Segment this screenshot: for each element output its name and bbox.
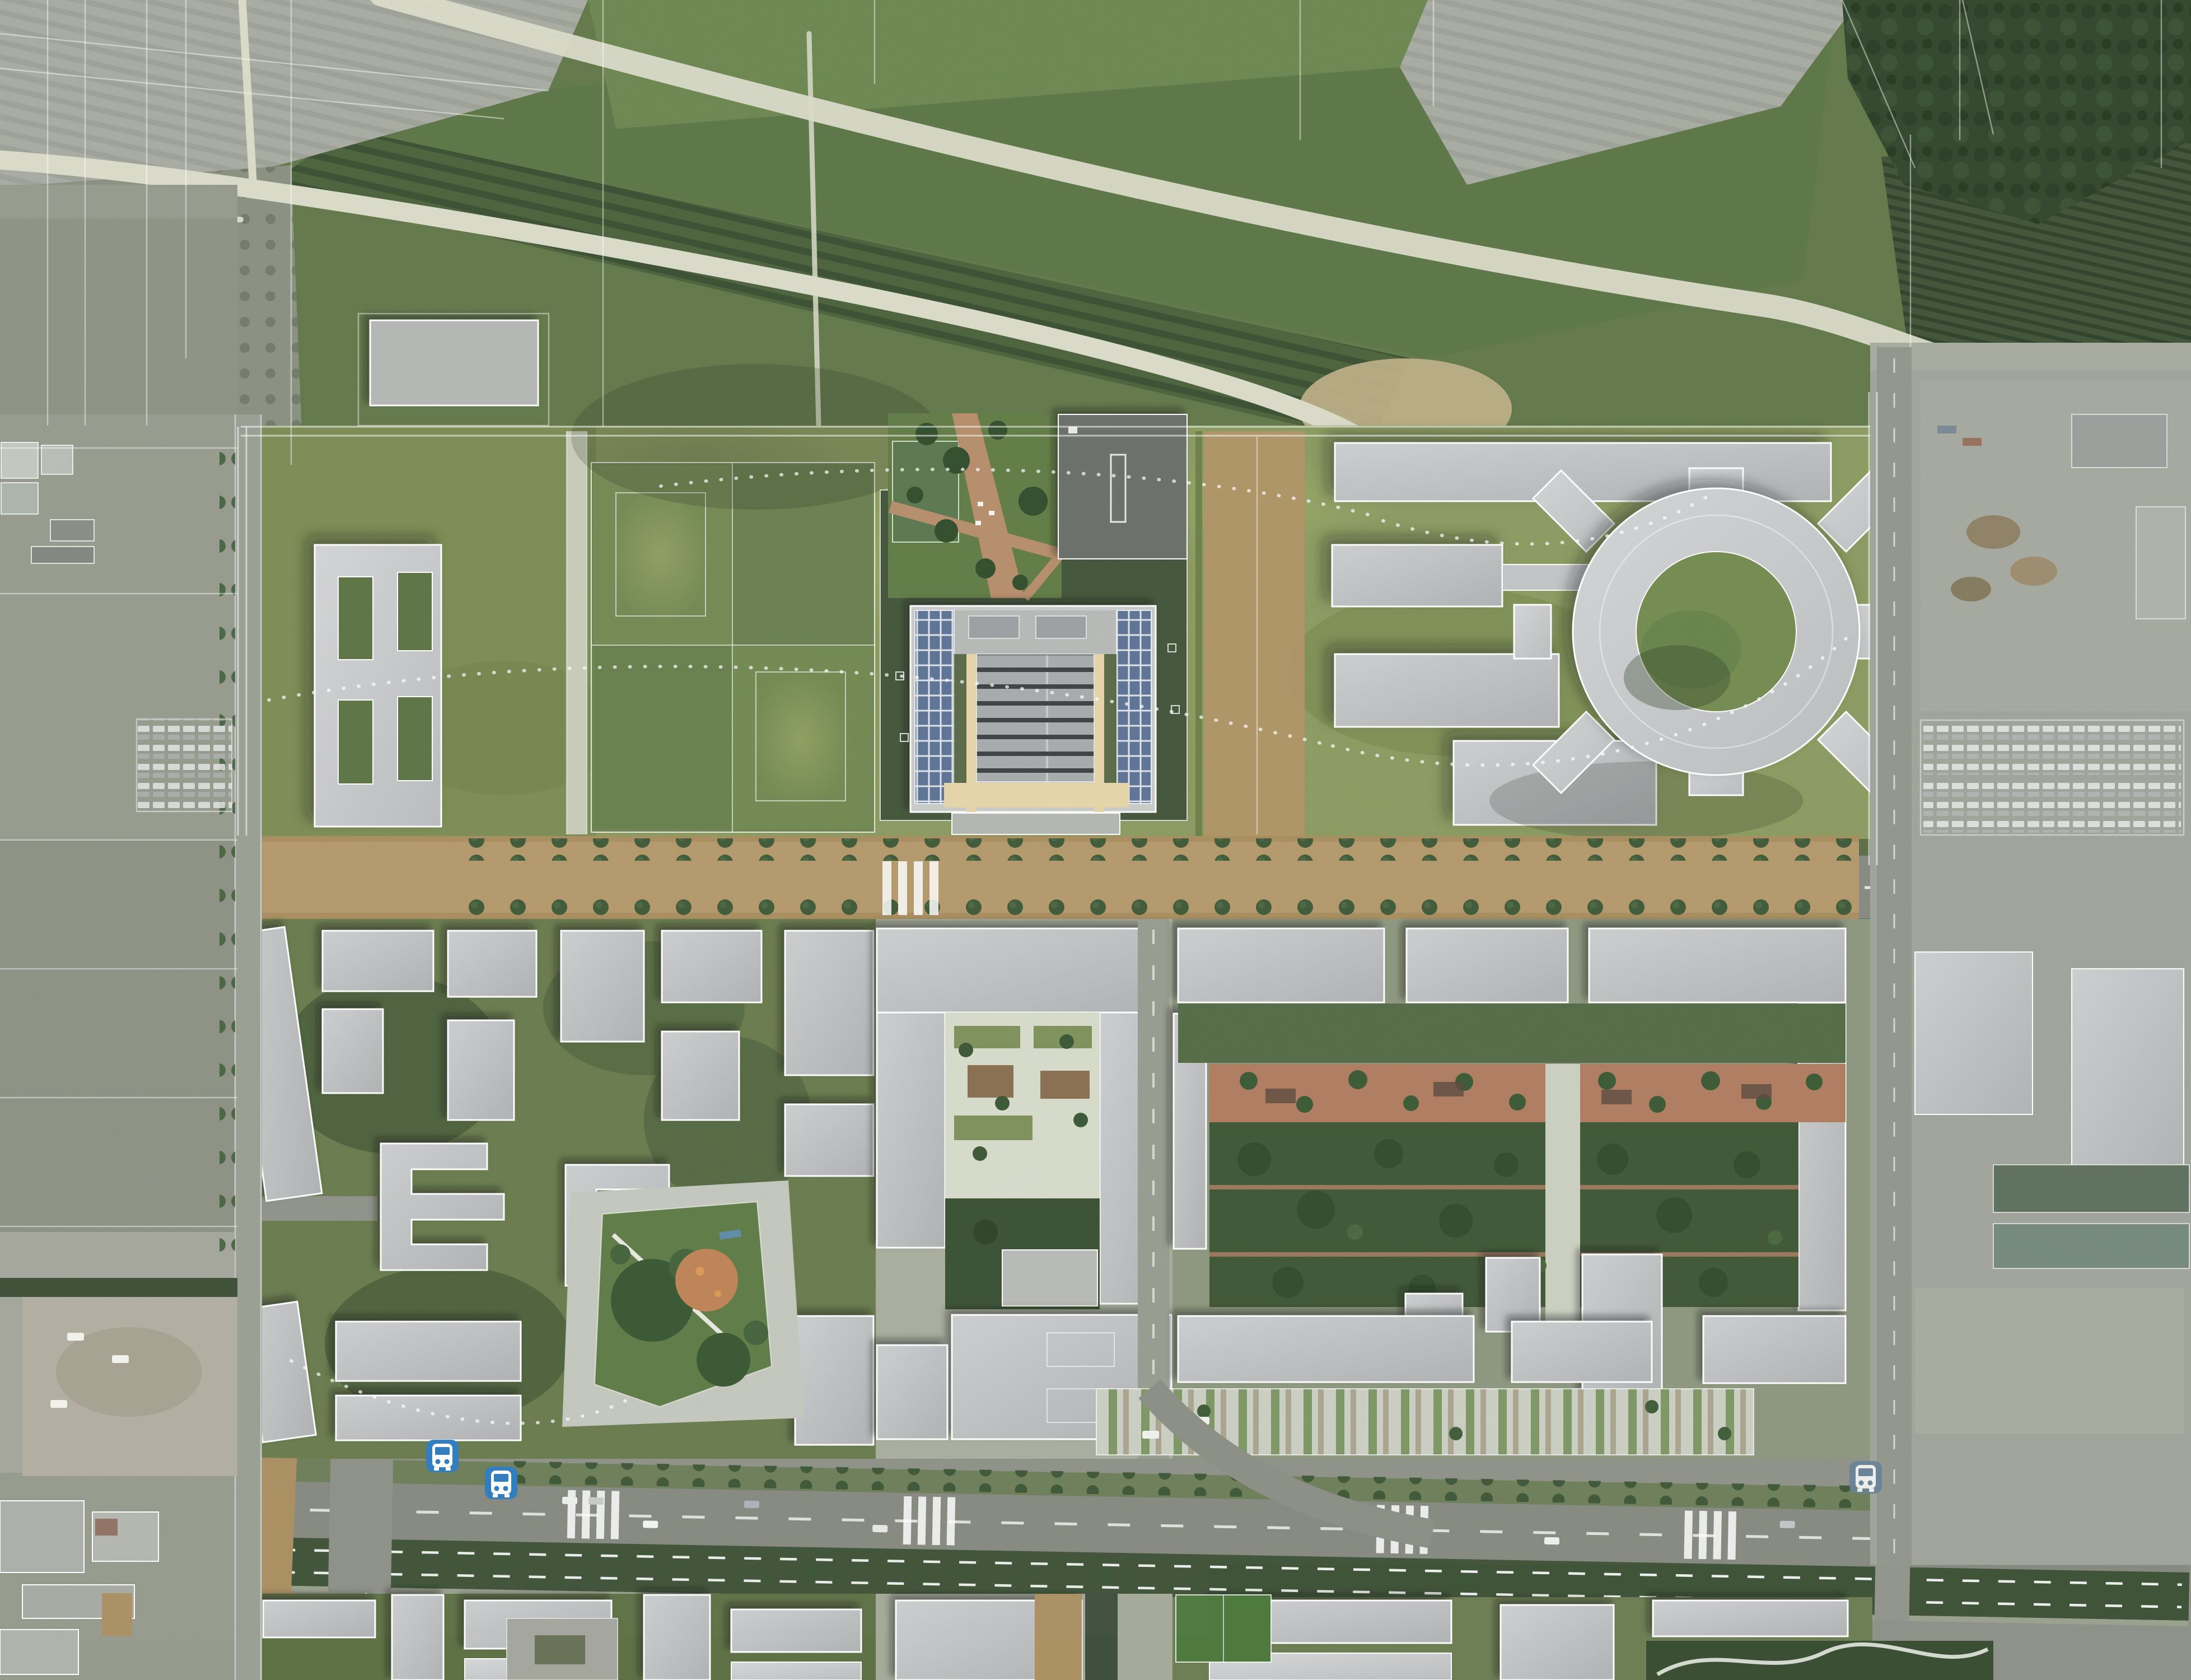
film-grain-overlay bbox=[0, 0, 2191, 1680]
aerial-masterplan-map bbox=[0, 0, 2191, 1680]
satellite-basemap bbox=[0, 0, 2191, 1680]
